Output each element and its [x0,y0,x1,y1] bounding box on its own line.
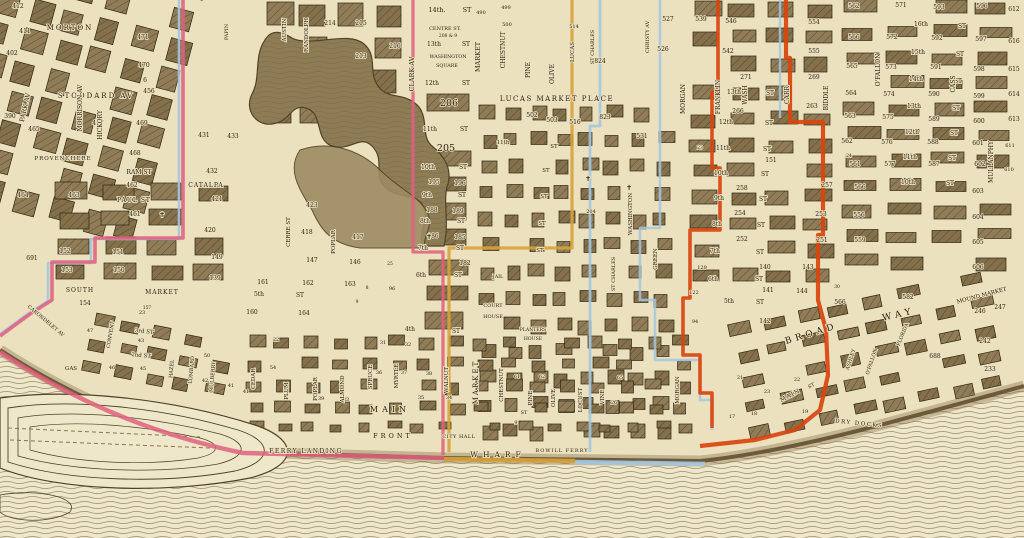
street-label: POPLAR [331,229,337,254]
city-block-hatch [608,187,620,200]
block-number: 271 [740,74,751,81]
block-number: 242 [979,338,991,345]
historical-city-map: 4124114023904654574564714706469468431433… [0,0,1024,538]
street-label: 208 & 9 [439,33,457,39]
street-label: OLIVE [551,389,557,407]
block-number: 599 [973,93,985,100]
street-label: CATALPA [188,182,223,189]
street-label: PROVENCHERE [34,156,91,162]
street-label: 16th [914,21,928,28]
city-block-hatch [478,360,493,371]
city-block-hatch [632,317,648,331]
street-label: 6th [416,272,426,279]
city-block-hatch [657,421,671,428]
street-label: PLUM [284,382,290,400]
block-number: 162 [302,280,314,287]
street-label: 12th [719,119,733,126]
city-block-hatch [976,77,1007,89]
block-number: 603 [972,188,984,195]
street-label: ST [756,299,764,306]
city-block-hatch [419,338,434,350]
block-number: 252 [736,236,748,243]
city-block-hatch [333,360,348,369]
street-label: ✝ [426,233,432,241]
city-block-hatch [528,264,544,276]
city-block-hatch [559,401,575,412]
block-number: 23 [139,310,145,316]
block-number: 189 [452,208,464,215]
street-label: JAIL [492,274,504,280]
city-block-hatch [422,380,436,390]
street-label: PLANTERS [520,327,547,333]
block-number: 390 [4,113,16,120]
block-number: 420 [204,227,216,234]
city-block-hatch [848,127,881,139]
street-label: MORTON [47,24,94,32]
street-label: ST [763,146,771,153]
street-label: ST [296,292,304,299]
street-label: MARKET [474,41,482,72]
block-number: 160 [246,309,258,316]
city-block-hatch [807,164,832,177]
street-label: 4th [405,326,415,333]
block-number: 576 [881,139,893,146]
street-label: ST [952,105,960,112]
street-label: RAM ST [126,169,151,176]
block-number: 151 [765,157,776,164]
block-number: 612 [1008,6,1020,13]
street-label: CITY HALL [442,434,475,440]
block-number: 590 [928,91,940,98]
block-number: 43 [138,338,144,344]
city-block-hatch [535,403,547,412]
street-label: PAPIN [224,23,230,40]
city-block-hatch [532,361,545,372]
block-number: 150 [113,267,125,274]
block-number: 555 [808,48,820,55]
block-number: 65 [617,375,623,381]
block-number: 556 [853,212,865,219]
street-label: CASS [950,75,957,92]
city-block-hatch [508,266,520,280]
city-block-hatch [845,254,878,265]
city-block-hatch [509,348,522,359]
block-number: 600 [973,118,985,125]
city-block-hatch [727,163,754,176]
block-number: 566 [848,34,860,41]
block-number: 32 [405,342,411,348]
block-number: 464 [17,192,29,199]
block-number: 490 [476,10,486,16]
city-block-hatch [556,160,568,174]
city-block-hatch [659,320,674,332]
city-block-hatch [359,423,369,432]
city-block-hatch [450,336,464,346]
block-number: 566 [854,184,866,191]
block-number: 18 [751,411,757,417]
block-number: 402 [6,50,18,57]
city-block-hatch [267,2,294,25]
city-block-hatch [728,4,754,17]
street-label: ✝ [626,184,632,192]
city-block-hatch [808,244,834,258]
city-block-hatch [731,56,756,71]
street-label: GREEN [653,248,659,270]
block-number: 140 [759,264,771,271]
city-block-hatch [305,404,320,413]
street-label: FERRY LANDING [269,448,343,455]
block-number: 263 [806,103,818,110]
street-label: CHESTNUT [499,368,505,402]
city-block-hatch [619,339,632,349]
city-block-hatch [553,293,565,306]
street-label: 9th [714,195,724,202]
block-number: 597 [975,36,987,43]
street-label: ST [462,80,470,87]
street-label: ST [463,6,472,14]
city-block-hatch [299,5,325,26]
block-number: 565 [846,63,858,70]
block-number: 17 [729,414,735,420]
block-number: 539 [695,16,707,23]
city-block-hatch [580,107,592,121]
block-number: 6 [143,77,147,84]
street-label: COURT [483,303,503,309]
block-number: 527 [662,16,674,23]
block-number: 582 [902,294,914,301]
street-label: CHRISTY AV [645,20,651,53]
city-block-hatch [769,141,793,153]
city-block-hatch [888,203,921,214]
street-label: LUCAS MARKET PLACE [500,95,614,103]
street-label: 15th [911,49,925,56]
block-number: 463 [68,192,80,199]
block-number: 94 [692,319,698,325]
block-number: 614 [1008,91,1020,98]
block-number: 589 [928,116,940,123]
block-number: 258 [736,185,748,192]
city-block-hatch [301,422,313,431]
city-block-hatch [335,339,348,349]
block-number: 246 [974,308,986,315]
block-number: 431 [198,132,209,139]
street-label: CENTRE ST. [429,26,461,32]
block-number: 691 [26,255,37,262]
street-label: ST [755,276,763,283]
street-label: VINE [600,390,606,406]
block-number: 266 [732,108,744,115]
city-block-hatch [580,291,596,302]
city-block-hatch [577,422,589,431]
block-number: 503 [546,117,558,124]
street-label: 8th [712,221,722,228]
block-number: 602 [974,161,986,168]
block-number: 500 [502,22,512,28]
city-block-hatch [417,359,429,370]
block-number: 161 [257,279,268,286]
city-block-hatch [389,335,405,345]
street-label: ST [550,144,558,150]
city-block-hatch [533,295,546,306]
city-block-hatch [599,425,610,432]
street-label: FRANKLIN [715,80,722,114]
street-label: MYRTLE [394,364,400,389]
block-number: 470 [138,62,150,69]
street-label: ST [521,410,528,416]
block-number: 23 [697,145,703,151]
city-block-hatch [563,359,575,368]
street-label: 6th [708,276,718,283]
block-number: 561 [849,161,860,168]
city-block-hatch [606,212,620,224]
street-label: ST [457,218,465,225]
block-number: 253 [815,211,827,218]
city-block-hatch [451,404,466,415]
block-number: 21 [737,375,743,381]
block-number: 613 [1008,116,1020,123]
street-label: ST [456,245,464,252]
city-block-hatch [622,381,634,393]
street-label: WASHINGTON [430,54,467,60]
street-label: 9 [514,420,517,426]
street-label: MORGAN [680,84,687,114]
city-block-hatch [336,402,350,413]
city-block-hatch [505,399,517,412]
city-block-hatch [658,427,671,439]
city-block-hatch [152,266,183,280]
city-block-hatch [195,238,223,255]
city-block-hatch [519,421,533,430]
block-number: 531 [636,133,647,140]
street-label: ST [956,51,964,58]
city-block-hatch [809,139,832,153]
street-label: 14th. [428,6,445,14]
map-canvas: 4124114023904654574564714706469468431433… [0,0,1024,538]
street-label: PINE [525,62,532,78]
block-number: 823 [599,114,611,121]
block-number: 24 [846,153,852,159]
boundary-yellow-wharf [444,459,575,461]
city-block-hatch [101,211,129,225]
street-label: ST [538,221,546,227]
block-number: 423 [306,202,318,209]
city-block-hatch [978,52,1007,65]
street-label: 10th [901,179,915,186]
street-label: BOWILL FERRY [535,448,588,454]
city-block-hatch [484,136,497,149]
street-label: 7th [418,245,428,252]
block-number: 421 [211,196,222,203]
block-number: 9 [356,299,359,305]
city-block-hatch [250,335,266,347]
city-block-hatch [275,401,291,412]
street-label: STODDARD AV [58,92,134,100]
city-block-hatch [509,159,523,173]
city-block-hatch [729,138,754,152]
block-number: 196 [454,180,466,187]
city-block-hatch [147,240,176,255]
city-block-hatch [554,186,568,199]
block-number: 144 [796,288,808,295]
street-label: RANDOLPH [304,18,310,52]
city-block-hatch [531,132,547,145]
block-number: 598 [973,66,985,73]
block-number: 30 [834,284,840,290]
block-number: 462 [126,182,138,189]
city-block-hatch [770,216,795,229]
block-number: 195 [428,179,440,186]
city-block-hatch [765,191,788,205]
street-label: 13th [727,89,741,96]
city-block-hatch [978,229,1011,239]
street-label: 14th [909,76,923,83]
city-block-hatch [805,189,832,201]
block-number: 42 [202,378,208,384]
city-block-hatch [650,405,663,414]
city-block-hatch [620,402,634,413]
city-block-hatch [934,206,966,219]
block-number: 471 [137,34,148,41]
street-label: ST [946,180,954,187]
block-number: 577 [884,161,896,168]
city-block-hatch [251,403,263,412]
street-label: MARKET [472,360,480,405]
street-label: ST [766,90,774,97]
street-label: ST [759,196,767,203]
street-label: 11th [423,126,437,133]
city-block-hatch [891,257,923,270]
block-number: 247 [994,304,1006,311]
street-label: FRONT [373,432,413,440]
street-label: 8th [420,218,430,225]
city-block-hatch [730,218,756,229]
city-block-hatch [628,423,638,432]
block-number: 604 [972,214,984,221]
block-number: 146 [349,259,361,266]
street-label: PINE [528,391,534,406]
block-number: 19 [802,409,808,415]
street-label: 10th [714,170,728,177]
block-number: 216 [389,43,401,50]
city-block-hatch [603,161,618,175]
city-block-hatch [659,132,675,143]
street-label: 10th [421,164,435,171]
block-number: 499 [501,5,511,11]
city-block-hatch [633,399,645,410]
block-number: 34 [446,395,452,401]
street-label: 9th [422,192,432,199]
street-label: ST [757,222,765,229]
block-number: 461 [129,211,140,218]
block-number: 824 [594,58,606,65]
street-label: GAS [65,366,77,372]
city-block-hatch [979,131,1009,141]
city-block-hatch [151,183,181,200]
block-number: 54 [270,365,276,371]
city-block-hatch [768,241,795,253]
street-label: 11th [716,145,730,152]
block-number: 251 [816,237,827,244]
city-block-hatch [933,128,964,140]
block-number: 573 [885,64,897,71]
block-number: 432 [206,168,218,175]
block-number: 269 [808,74,820,81]
city-block-hatch [302,357,318,368]
block-number: 591 [930,64,941,71]
boundary-blue-wharf [575,462,705,464]
block-number: 468 [129,150,141,157]
street-label: CHESTNUT [500,32,507,69]
city-block-hatch [480,187,492,198]
street-label: ST [458,192,466,199]
block-number: 587 [928,161,940,168]
city-block-hatch [507,379,523,391]
block-number: 22 [794,377,800,383]
city-block-hatch [565,338,580,348]
city-block-hatch [607,294,622,307]
city-block-hatch [980,204,1011,215]
street-label: ALMOND [340,375,346,404]
city-block-hatch [504,317,520,329]
street-label: 5th [724,298,734,305]
street-label: POPLAR [313,376,319,401]
city-block-hatch [279,424,292,431]
block-number: 502 [526,112,538,119]
block-number: 417 [352,234,364,241]
block-number: 182 [459,260,471,267]
street-label: MORGAN [675,376,681,404]
block-number: 45 [140,366,146,372]
city-block-hatch [630,348,643,361]
city-block-hatch [806,31,832,43]
block-number: 62 [539,374,545,380]
block-number: 566 [834,299,846,306]
street-label: 11th [903,154,917,161]
city-block-hatch [974,101,1007,112]
street-label: MAIN [370,405,410,414]
block-number: 418 [301,229,313,236]
street-label: ST [765,120,773,127]
block-number: 153 [61,267,73,274]
block-number: 206 [440,98,458,109]
block-number: 147 [306,257,318,264]
city-block-hatch [886,233,916,243]
block-number: 50 [204,353,210,359]
block-number: 141 [762,287,773,294]
city-block-hatch [479,105,495,119]
block-number: 122 [689,290,699,296]
street-label: MORRISON AV [77,84,84,132]
street-label: CLARK AV [408,56,416,91]
block-number: 562 [848,3,860,10]
street-label: ST [948,155,956,162]
block-number: 592 [931,35,943,42]
city-block-hatch [304,336,318,348]
block-number: 606 [972,264,984,271]
block-number: 204 [586,209,596,215]
block-number: 433 [227,133,239,140]
street-label: LOCUST [578,387,584,412]
block-number: 412 [12,3,24,10]
block-number: 465 [28,126,40,133]
block-number: 575 [882,114,894,121]
city-block-hatch [504,337,516,347]
block-number: 456 [143,88,155,95]
street-label: ST [950,130,958,137]
street-label: AUSTIN [282,18,288,42]
street-label: CEDAR [251,368,257,390]
city-block-hatch [732,193,756,205]
